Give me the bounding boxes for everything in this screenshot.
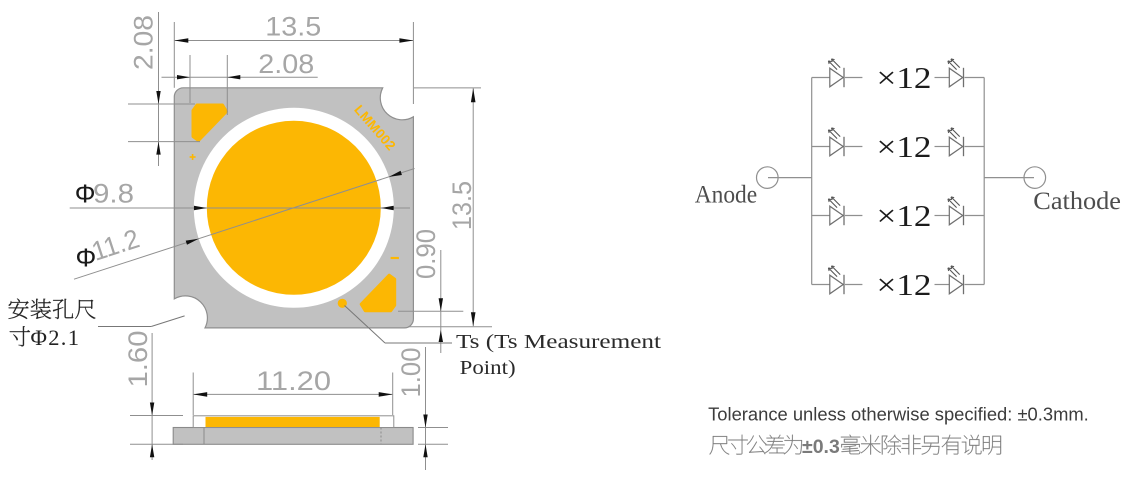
svg-text:×12: ×12: [877, 129, 932, 164]
svg-text:9.8: 9.8: [93, 179, 134, 209]
svg-text:±0.3: ±0.3: [802, 436, 840, 458]
svg-text:13.5: 13.5: [447, 181, 477, 230]
svg-text:Ts (Ts Measurement: Ts (Ts Measurement: [456, 331, 662, 353]
svg-text:11.20: 11.20: [256, 366, 331, 396]
svg-text:Anode: Anode: [695, 181, 758, 208]
svg-text:×12: ×12: [877, 267, 932, 302]
svg-text:13.5: 13.5: [265, 12, 321, 42]
svg-text:Φ2.1: Φ2.1: [31, 325, 81, 350]
svg-text:Cathode: Cathode: [1033, 188, 1121, 215]
svg-text:11.2: 11.2: [88, 223, 143, 266]
svg-text:2.08: 2.08: [258, 49, 314, 79]
svg-text:×12: ×12: [877, 198, 932, 233]
svg-text:Tolerance unless otherwise spe: Tolerance unless otherwise specified: ±0…: [708, 405, 1089, 425]
svg-text:1.60: 1.60: [123, 331, 153, 388]
svg-text:Point): Point): [460, 357, 516, 379]
svg-text:1.00: 1.00: [396, 348, 426, 398]
svg-text:0.90: 0.90: [411, 229, 441, 279]
svg-text:2.08: 2.08: [129, 15, 159, 70]
svg-text:×12: ×12: [877, 60, 932, 95]
